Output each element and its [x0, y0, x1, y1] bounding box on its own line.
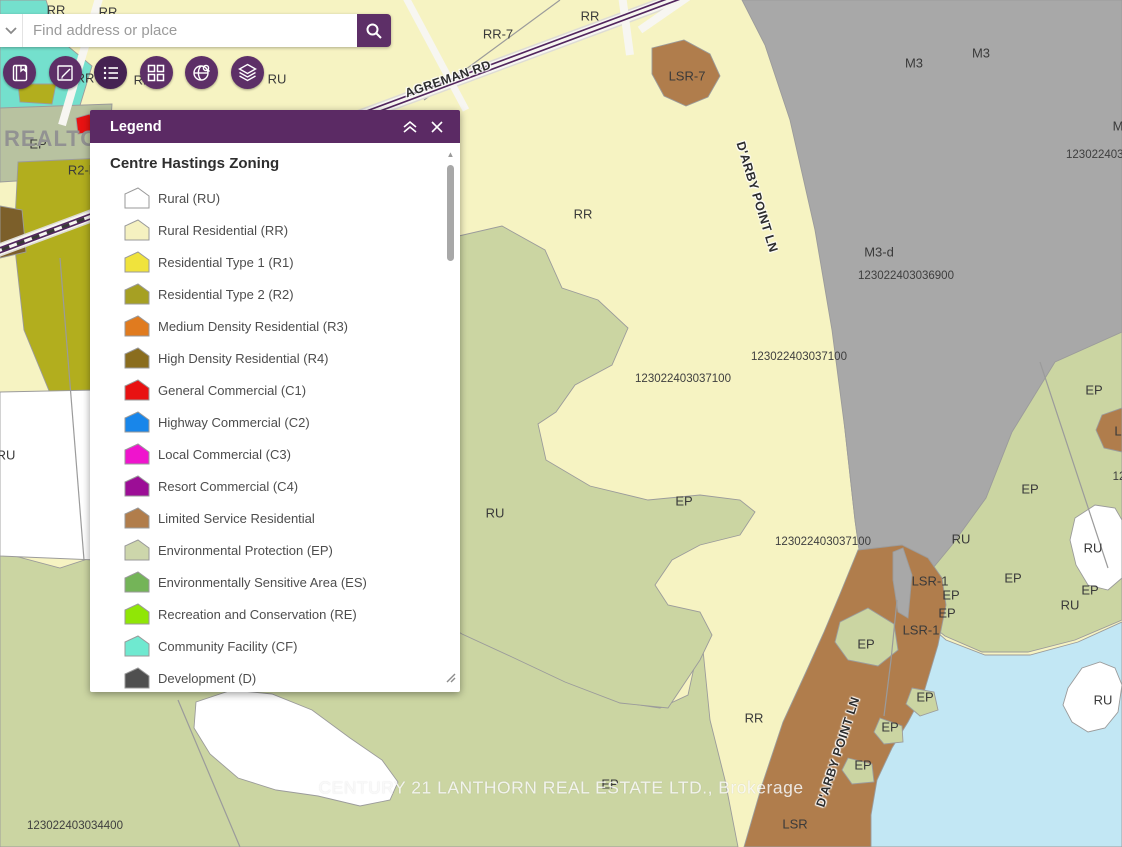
close-panel-button[interactable]: [424, 120, 450, 134]
legend-panel-body: Centre Hastings Zoning Rural (RU) Rural …: [90, 143, 460, 692]
legend-swatch: [124, 379, 150, 401]
legend-item-label: Rural (RU): [158, 191, 220, 206]
resize-grip-icon: [444, 671, 456, 683]
legend-swatch: [124, 603, 150, 625]
legend-item: Local Commercial (C3): [102, 438, 460, 470]
legend-item-label: General Commercial (C1): [158, 383, 306, 398]
legend-swatch: [124, 443, 150, 465]
legend-item: Resort Commercial (C4): [102, 470, 460, 502]
legend-item-label: Residential Type 2 (R2): [158, 287, 294, 302]
legend-swatch: [124, 251, 150, 273]
search-source-dropdown[interactable]: [0, 14, 23, 47]
legend-panel: Legend Centre Hastings Zoning: [90, 110, 460, 692]
search-input[interactable]: [23, 14, 357, 47]
legend-swatch: [124, 635, 150, 657]
legend-swatch: [124, 475, 150, 497]
legend-item-label: Resort Commercial (C4): [158, 479, 298, 494]
legend-swatch: [124, 187, 150, 209]
collapse-panel-button[interactable]: [396, 120, 424, 134]
search-bar: [0, 14, 391, 47]
sketch-map-icon: [56, 64, 74, 82]
legend-item-label: Residential Type 1 (R1): [158, 255, 294, 270]
legend-item-label: Community Facility (CF): [158, 639, 297, 654]
globe-magnifier-icon: [192, 63, 211, 82]
search-icon: [365, 22, 383, 40]
legend-swatch: [124, 283, 150, 305]
legend-swatch: [124, 219, 150, 241]
layers-icon: [238, 63, 257, 82]
legend-item: Residential Type 1 (R1): [102, 246, 460, 278]
legend-item: Rural (RU): [102, 182, 460, 214]
double-chevron-up-icon: [402, 120, 418, 134]
legend-item-label: Limited Service Residential: [158, 511, 315, 526]
legend-swatch: [124, 571, 150, 593]
legend-item-label: Environmentally Sensitive Area (ES): [158, 575, 367, 590]
bookmark-book-icon: [11, 64, 29, 82]
legend-item: Development (D): [102, 662, 460, 692]
layers-button[interactable]: [231, 56, 264, 89]
legend-items: Rural (RU) Rural Residential (RR) Reside…: [102, 182, 460, 692]
legend-item: Community Facility (CF): [102, 630, 460, 662]
scrollbar-thumb[interactable]: [447, 165, 454, 261]
search-button[interactable]: [357, 14, 391, 47]
legend-panel-header[interactable]: Legend: [90, 110, 460, 143]
legend-item: Environmentally Sensitive Area (ES): [102, 566, 460, 598]
globe-search-button[interactable]: [185, 56, 218, 89]
bookmarks-button[interactable]: [3, 56, 36, 89]
legend-item-label: Development (D): [158, 671, 256, 686]
basemap-gallery-button[interactable]: [140, 56, 173, 89]
legend-item: Limited Service Residential: [102, 502, 460, 534]
legend-item: High Density Residential (R4): [102, 342, 460, 374]
legend-item-label: Local Commercial (C3): [158, 447, 291, 462]
legend-swatch: [124, 667, 150, 689]
grid-icon: [147, 64, 165, 82]
legend-swatch: [124, 347, 150, 369]
legend-layer-heading: Centre Hastings Zoning: [110, 155, 460, 172]
legend-item: Medium Density Residential (R3): [102, 310, 460, 342]
legend-panel-title: Legend: [110, 119, 396, 135]
legend-swatch: [124, 315, 150, 337]
legend-swatch: [124, 411, 150, 433]
legend-button[interactable]: [94, 56, 127, 89]
legend-item: Residential Type 2 (R2): [102, 278, 460, 310]
legend-item-label: Recreation and Conservation (RE): [158, 607, 357, 622]
legend-item-label: Highway Commercial (C2): [158, 415, 310, 430]
legend-scrollbar: ▲: [446, 150, 455, 692]
brokerage-watermark: CENTURY 21 LANTHORN REAL ESTATE LTD., Br…: [318, 778, 803, 799]
legend-list-icon: [102, 64, 120, 82]
panel-resize-handle[interactable]: [444, 670, 456, 688]
chevron-down-icon: [5, 27, 17, 35]
legend-item-label: Medium Density Residential (R3): [158, 319, 348, 334]
legend-item: Rural Residential (RR): [102, 214, 460, 246]
legend-item-label: Rural Residential (RR): [158, 223, 288, 238]
scroll-up-arrow[interactable]: ▲: [446, 150, 455, 159]
sketch-button[interactable]: [49, 56, 82, 89]
legend-item-label: High Density Residential (R4): [158, 351, 329, 366]
map-toolbar: [3, 56, 264, 89]
legend-item-label: Environmental Protection (EP): [158, 543, 333, 558]
close-icon: [430, 120, 444, 134]
legend-item: Environmental Protection (EP): [102, 534, 460, 566]
legend-item: General Commercial (C1): [102, 374, 460, 406]
legend-item: Recreation and Conservation (RE): [102, 598, 460, 630]
legend-item: Highway Commercial (C2): [102, 406, 460, 438]
legend-swatch: [124, 539, 150, 561]
map-viewer: RRRRRRRRRURR-7RRLSR-7M3M3M1230224030RRM3…: [0, 0, 1122, 847]
legend-swatch: [124, 507, 150, 529]
